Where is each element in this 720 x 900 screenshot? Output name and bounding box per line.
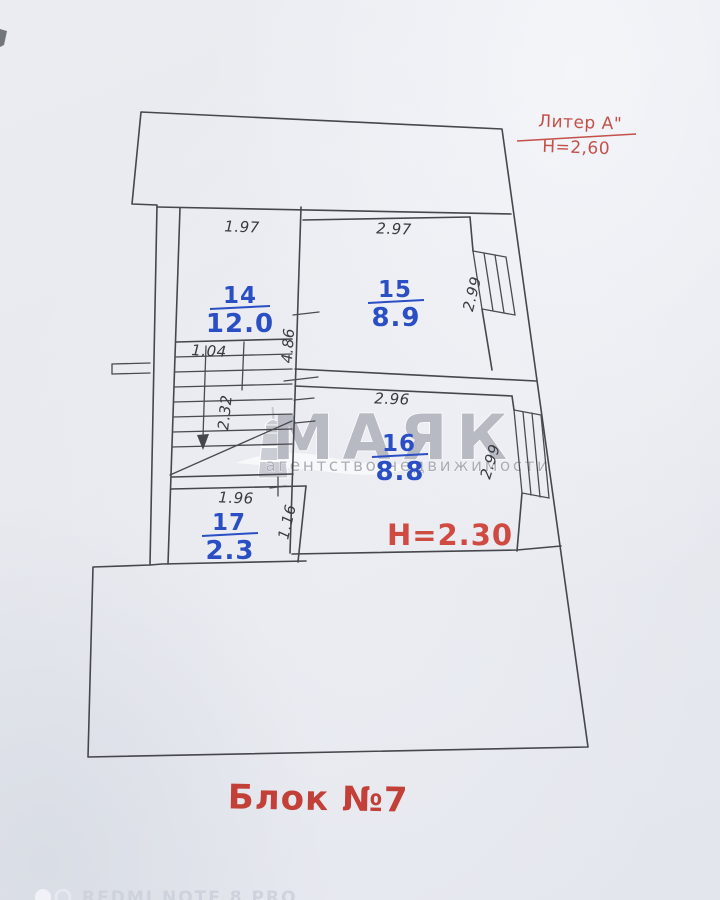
- dim-room17-depth: 1.16: [274, 503, 300, 542]
- room14-area: 12.0: [206, 309, 274, 339]
- dim-room16-width: 2.96: [374, 389, 410, 408]
- block-title: Блок №7: [228, 777, 409, 820]
- dim-room15-width: 2.97: [376, 219, 412, 238]
- room15-number: 15: [378, 277, 412, 303]
- dim-stairs-width: 1.04: [191, 341, 227, 361]
- dim-room14-width: 1.97: [224, 217, 260, 236]
- liter-height-label: Н=2,60: [542, 137, 611, 159]
- camera-ring-icon: [56, 890, 70, 900]
- room14-label: 14 12.0: [206, 283, 274, 339]
- floor-plan-drawing: МАЯК агентство недвижимости: [0, 0, 720, 900]
- photo-edge-artifact: [0, 29, 7, 47]
- room15-16-wall-outer: [295, 369, 536, 381]
- camera-watermark: REDMI NOTE 8 PRO: [35, 888, 298, 900]
- room16-height-note: Н=2.30: [387, 518, 513, 552]
- stair-flight-divider: [242, 342, 244, 390]
- camera-dot-icon: [35, 889, 51, 900]
- corridor-bottom-wall: [157, 207, 511, 214]
- dim-stairs-depth: 2.32: [214, 394, 236, 431]
- room17-area: 2.3: [205, 536, 254, 566]
- liter-label: Литер А": [538, 112, 622, 135]
- inner-left-wall: [168, 208, 180, 564]
- room17-label: 17 2.3: [202, 510, 258, 566]
- room14-number: 14: [223, 283, 257, 309]
- dimension-labels: 1.97 2.97 2.99 4.86 1.04 2.32 2.96 2.99 …: [191, 217, 504, 541]
- dim-hall-depth: 4.86: [278, 327, 298, 364]
- dim-room17-width: 1.96: [218, 488, 254, 507]
- room15-label: 15 8.9: [368, 277, 424, 333]
- room16-number: 16: [382, 431, 416, 457]
- room15-area: 8.9: [371, 303, 420, 333]
- room16-area: 8.8: [375, 457, 424, 487]
- room17-number: 17: [212, 510, 246, 536]
- window-icon: [514, 410, 549, 498]
- camera-model-text: REDMI NOTE 8 PRO: [82, 888, 298, 900]
- stair-direction-arrow: [197, 346, 209, 450]
- left-wall-ledge: [112, 363, 150, 374]
- photographed-floor-plan-page: МАЯК агентство недвижимости: [0, 0, 720, 900]
